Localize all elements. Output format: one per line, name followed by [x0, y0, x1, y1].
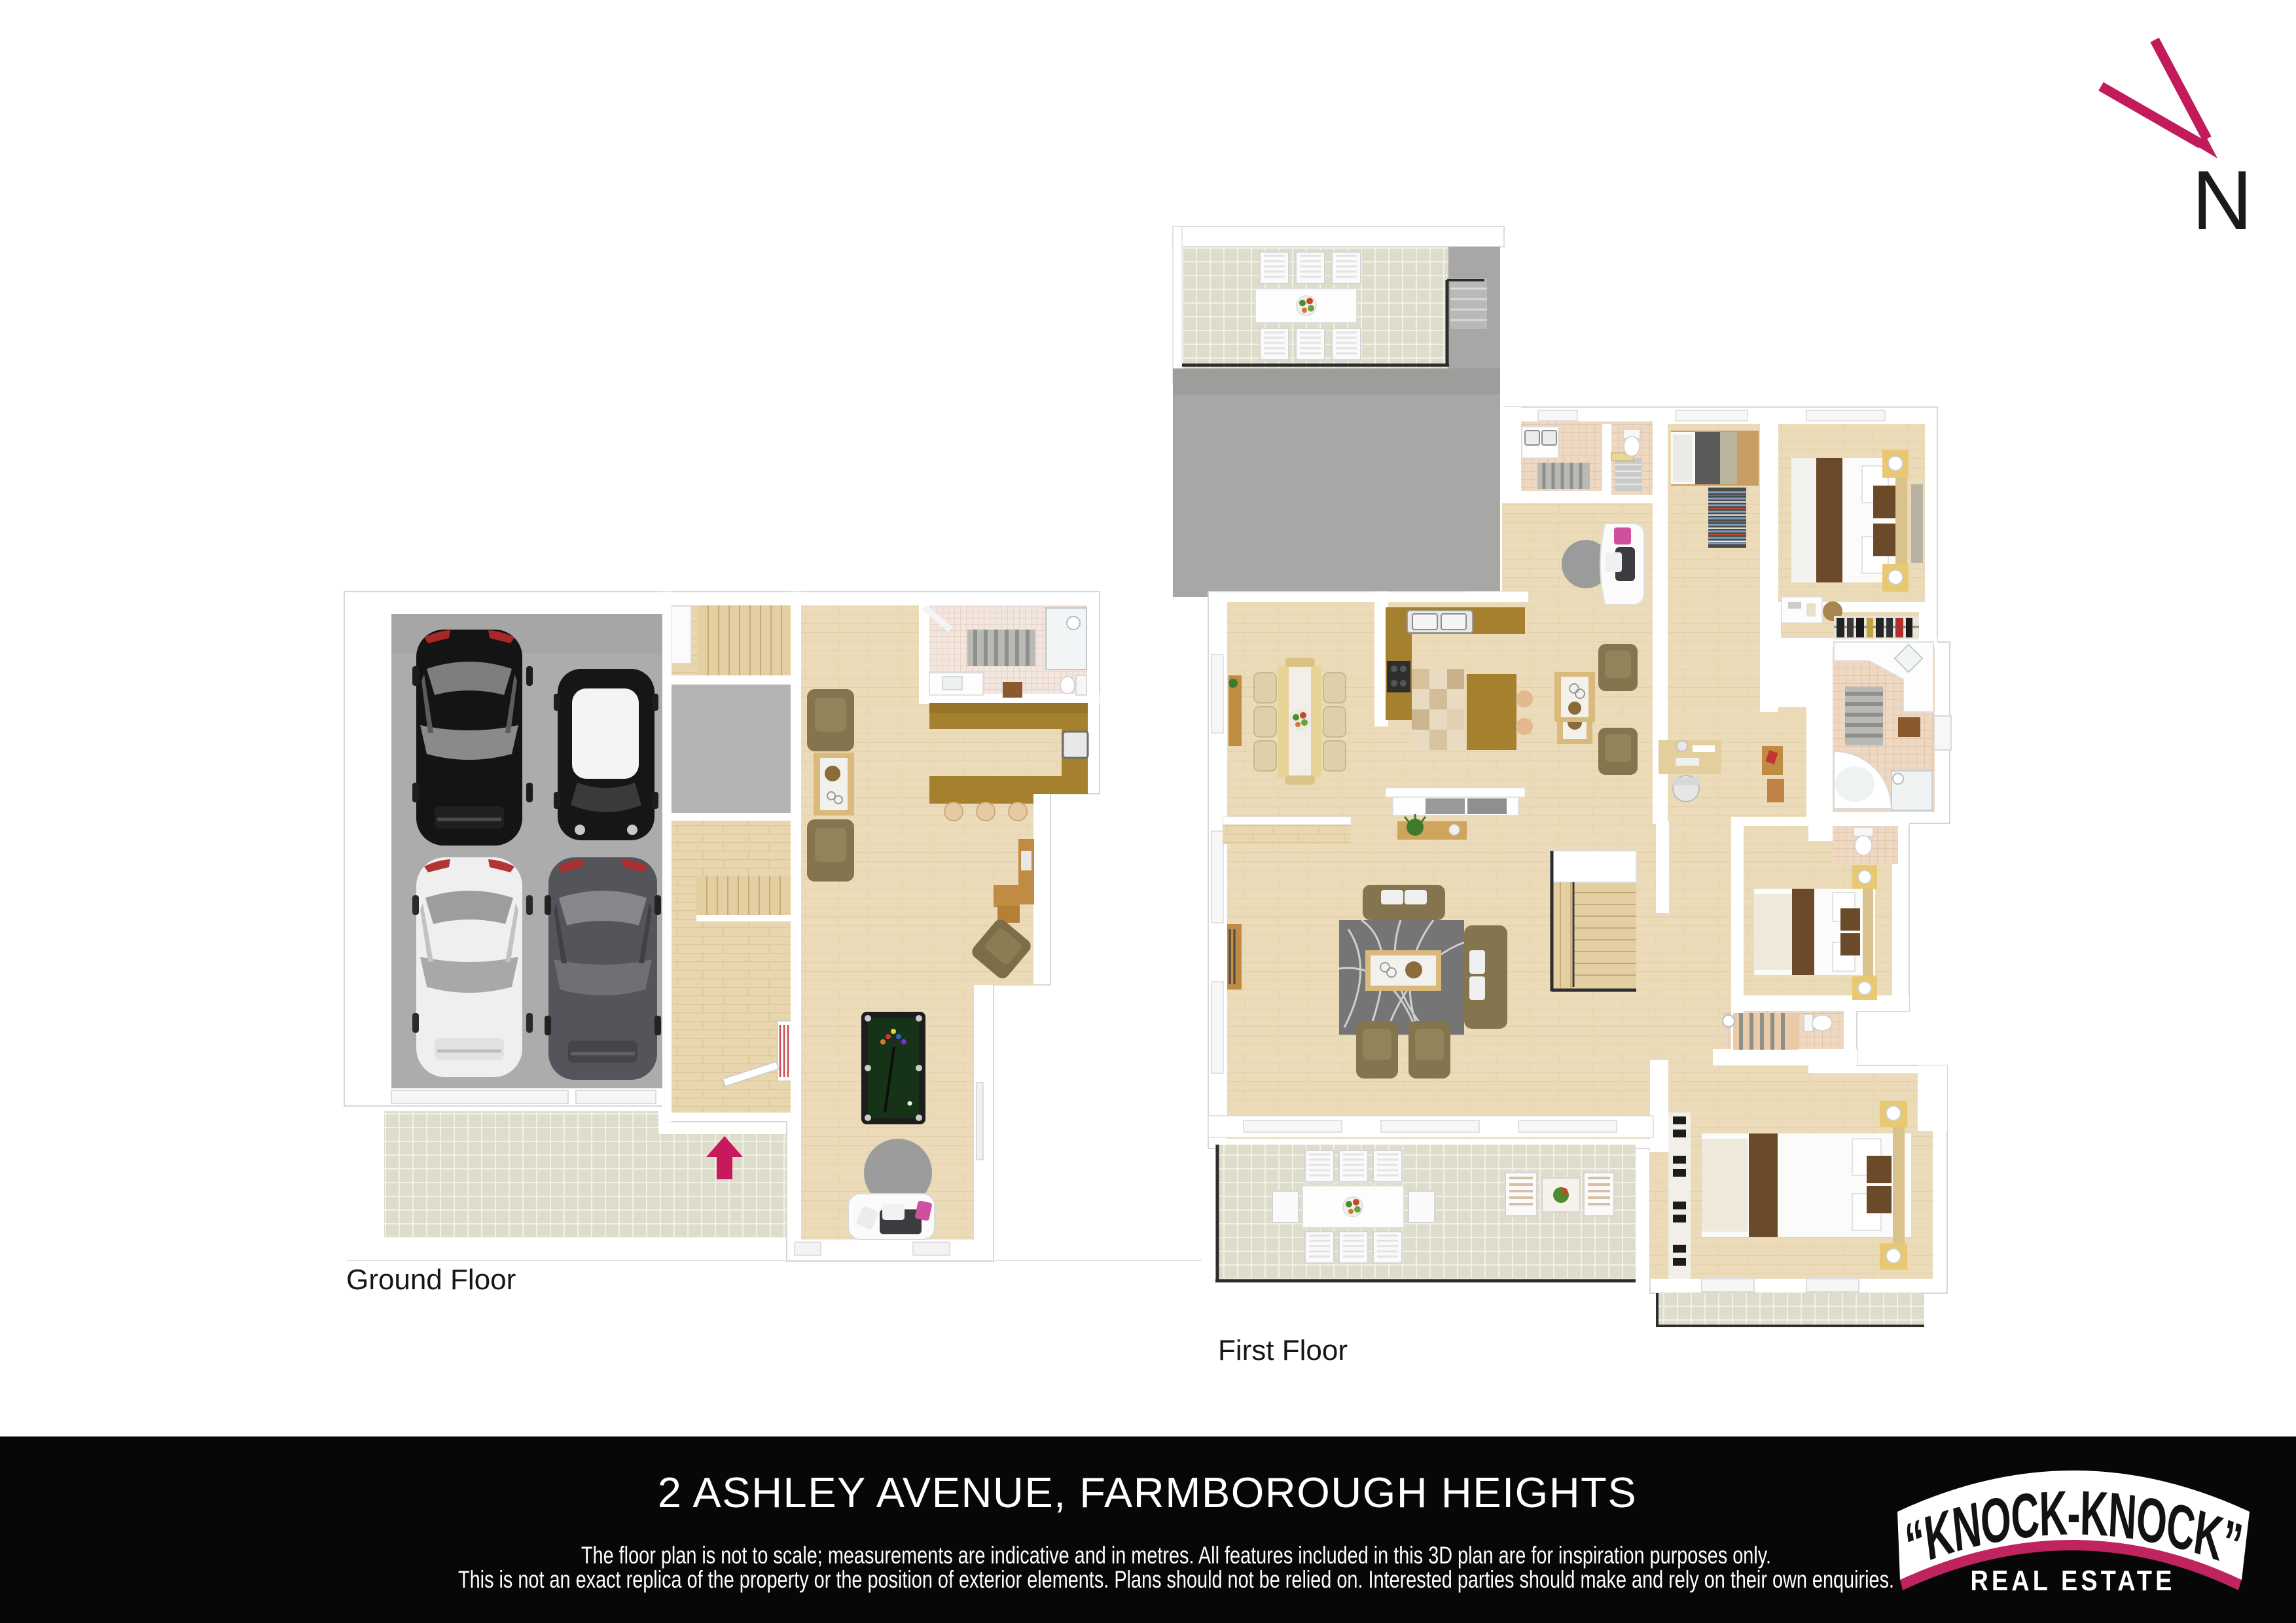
svg-text:The floor plan is not to scale: The floor plan is not to scale; measurem… — [581, 1543, 1771, 1569]
svg-text:REAL ESTATE: REAL ESTATE — [1970, 1564, 2175, 1596]
svg-text:This is not an exact replica o: This is not an exact replica of the prop… — [458, 1567, 1894, 1594]
svg-text:First Floor: First Floor — [1218, 1334, 1348, 1366]
svg-text:N: N — [2192, 154, 2252, 247]
svg-text:2 ASHLEY AVENUE, FARMBOROUGH H: 2 ASHLEY AVENUE, FARMBOROUGH HEIGHTS — [658, 1469, 1637, 1516]
svg-text:Ground Floor: Ground Floor — [346, 1264, 516, 1296]
